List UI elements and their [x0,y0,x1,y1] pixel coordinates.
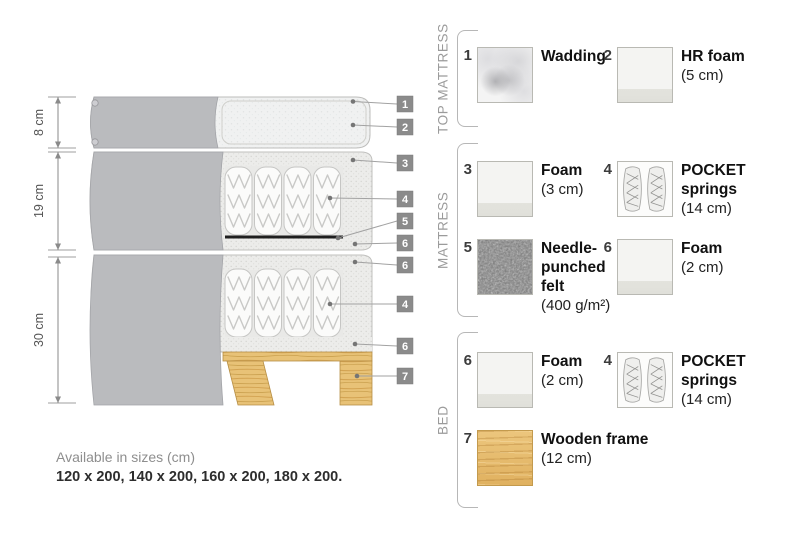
legend-item-pocket-springs-mattress: 4 POCKET springs (14 cm) [596,161,746,218]
dimension-8cm: 8 cm [32,97,76,148]
legend-item-foam-2cm-bed: 6 Foam (2 cm) [456,352,584,408]
bed-base-drawing [90,255,372,405]
svg-text:5: 5 [402,216,408,228]
label-size: (12 cm) [541,449,648,468]
foam-texture-swatch [617,47,673,103]
legend-item-pocket-springs-bed: 4 POCKET springs (14 cm) [596,352,746,409]
section-label-mattress: MATTRESS [433,143,453,317]
legend-item-number: 7 [456,430,472,447]
mattress-infographic: 8 cm 19 cm 30 cm 1 2 [0,0,800,533]
svg-text:6: 6 [402,238,408,250]
legend-item-wooden-frame: 7 Wooden frame (12 cm) [456,430,648,486]
section-label-bed: BED [433,332,453,508]
legend-item-number: 4 [596,352,612,369]
label-size: (2 cm) [541,371,584,390]
svg-text:4: 4 [402,299,409,311]
dimension-19cm: 19 cm [32,152,76,250]
label-line: HR foam [681,47,745,66]
label-size: (14 cm) [681,390,746,409]
svg-text:3: 3 [402,158,408,170]
dimension-label: 19 cm [32,184,46,218]
legend-item-label: POCKET springs (14 cm) [681,161,746,218]
legend-item-number: 1 [456,47,472,64]
svg-text:1: 1 [402,99,408,111]
legend-item-wadding: 1 Wadding [456,47,606,103]
wood-texture-swatch [477,430,533,486]
label-line: springs [681,371,746,390]
label-line: Foam [541,352,584,371]
legend-item-foam-2cm-mattress: 6 Foam (2 cm) [596,239,724,295]
legend-item-number: 6 [456,352,472,369]
label-size: (3 cm) [541,180,584,199]
dimension-30cm: 30 cm [32,257,76,403]
svg-text:6: 6 [402,341,408,353]
wooden-leg-right [340,361,372,405]
pocket-springs-texture-swatch [617,161,673,217]
pocket-springs-texture-swatch [617,352,673,408]
bed-cross-section-diagram: 8 cm 19 cm 30 cm 1 2 [20,80,430,420]
legend-item-number: 2 [596,47,612,64]
foam-texture-swatch [477,352,533,408]
dimension-label: 8 cm [32,109,46,136]
legend-item-label: Foam (2 cm) [681,239,724,277]
legend-item-label: Foam (3 cm) [541,161,584,199]
mattress-drawing [90,152,372,250]
legend-item-hr-foam: 2 HR foam (5 cm) [596,47,745,103]
dimension-label: 30 cm [32,313,46,347]
legend-item-label: HR foam (5 cm) [681,47,745,85]
label-size: (400 g/m²) [541,296,610,315]
top-mattress-drawing [91,97,371,148]
label-line: POCKET [681,352,746,371]
label-size: (14 cm) [681,199,746,218]
available-sizes-list: 120 x 200, 140 x 200, 160 x 200, 180 x 2… [56,469,342,485]
svg-text:6: 6 [402,260,408,272]
label-size: (5 cm) [681,66,745,85]
legend-item-number: 6 [596,239,612,256]
legend-item-label: Wooden frame (12 cm) [541,430,648,468]
legend-item-number: 4 [596,161,612,178]
wadding-texture-swatch [477,47,533,103]
legend-item-label: POCKET springs (14 cm) [681,352,746,409]
legend-item-needle-punched-felt: 5 Needle- punched felt (400 g/m²) [456,239,610,315]
available-sizes-title: Available in sizes (cm) [56,449,195,465]
section-label-top-mattress: TOP MATTRESS [433,30,453,128]
label-line: POCKET [681,161,746,180]
foam-texture-swatch [617,239,673,295]
svg-text:7: 7 [402,371,408,383]
foam-texture-swatch [477,161,533,217]
felt-layer-line [225,236,343,239]
svg-text:2: 2 [402,122,408,134]
legend-item-number: 3 [456,161,472,178]
wooden-leg-left [227,361,274,405]
label-line: Foam [541,161,584,180]
wooden-slat [223,352,372,361]
felt-texture-swatch [477,239,533,295]
legend-item-number: 5 [456,239,472,256]
legend-item-label: Foam (2 cm) [541,352,584,390]
label-line: Foam [681,239,724,258]
label-line: Wooden frame [541,430,648,449]
label-size: (2 cm) [681,258,724,277]
legend-item-foam-3cm: 3 Foam (3 cm) [456,161,584,217]
label-line: springs [681,180,746,199]
svg-text:4: 4 [402,194,409,206]
